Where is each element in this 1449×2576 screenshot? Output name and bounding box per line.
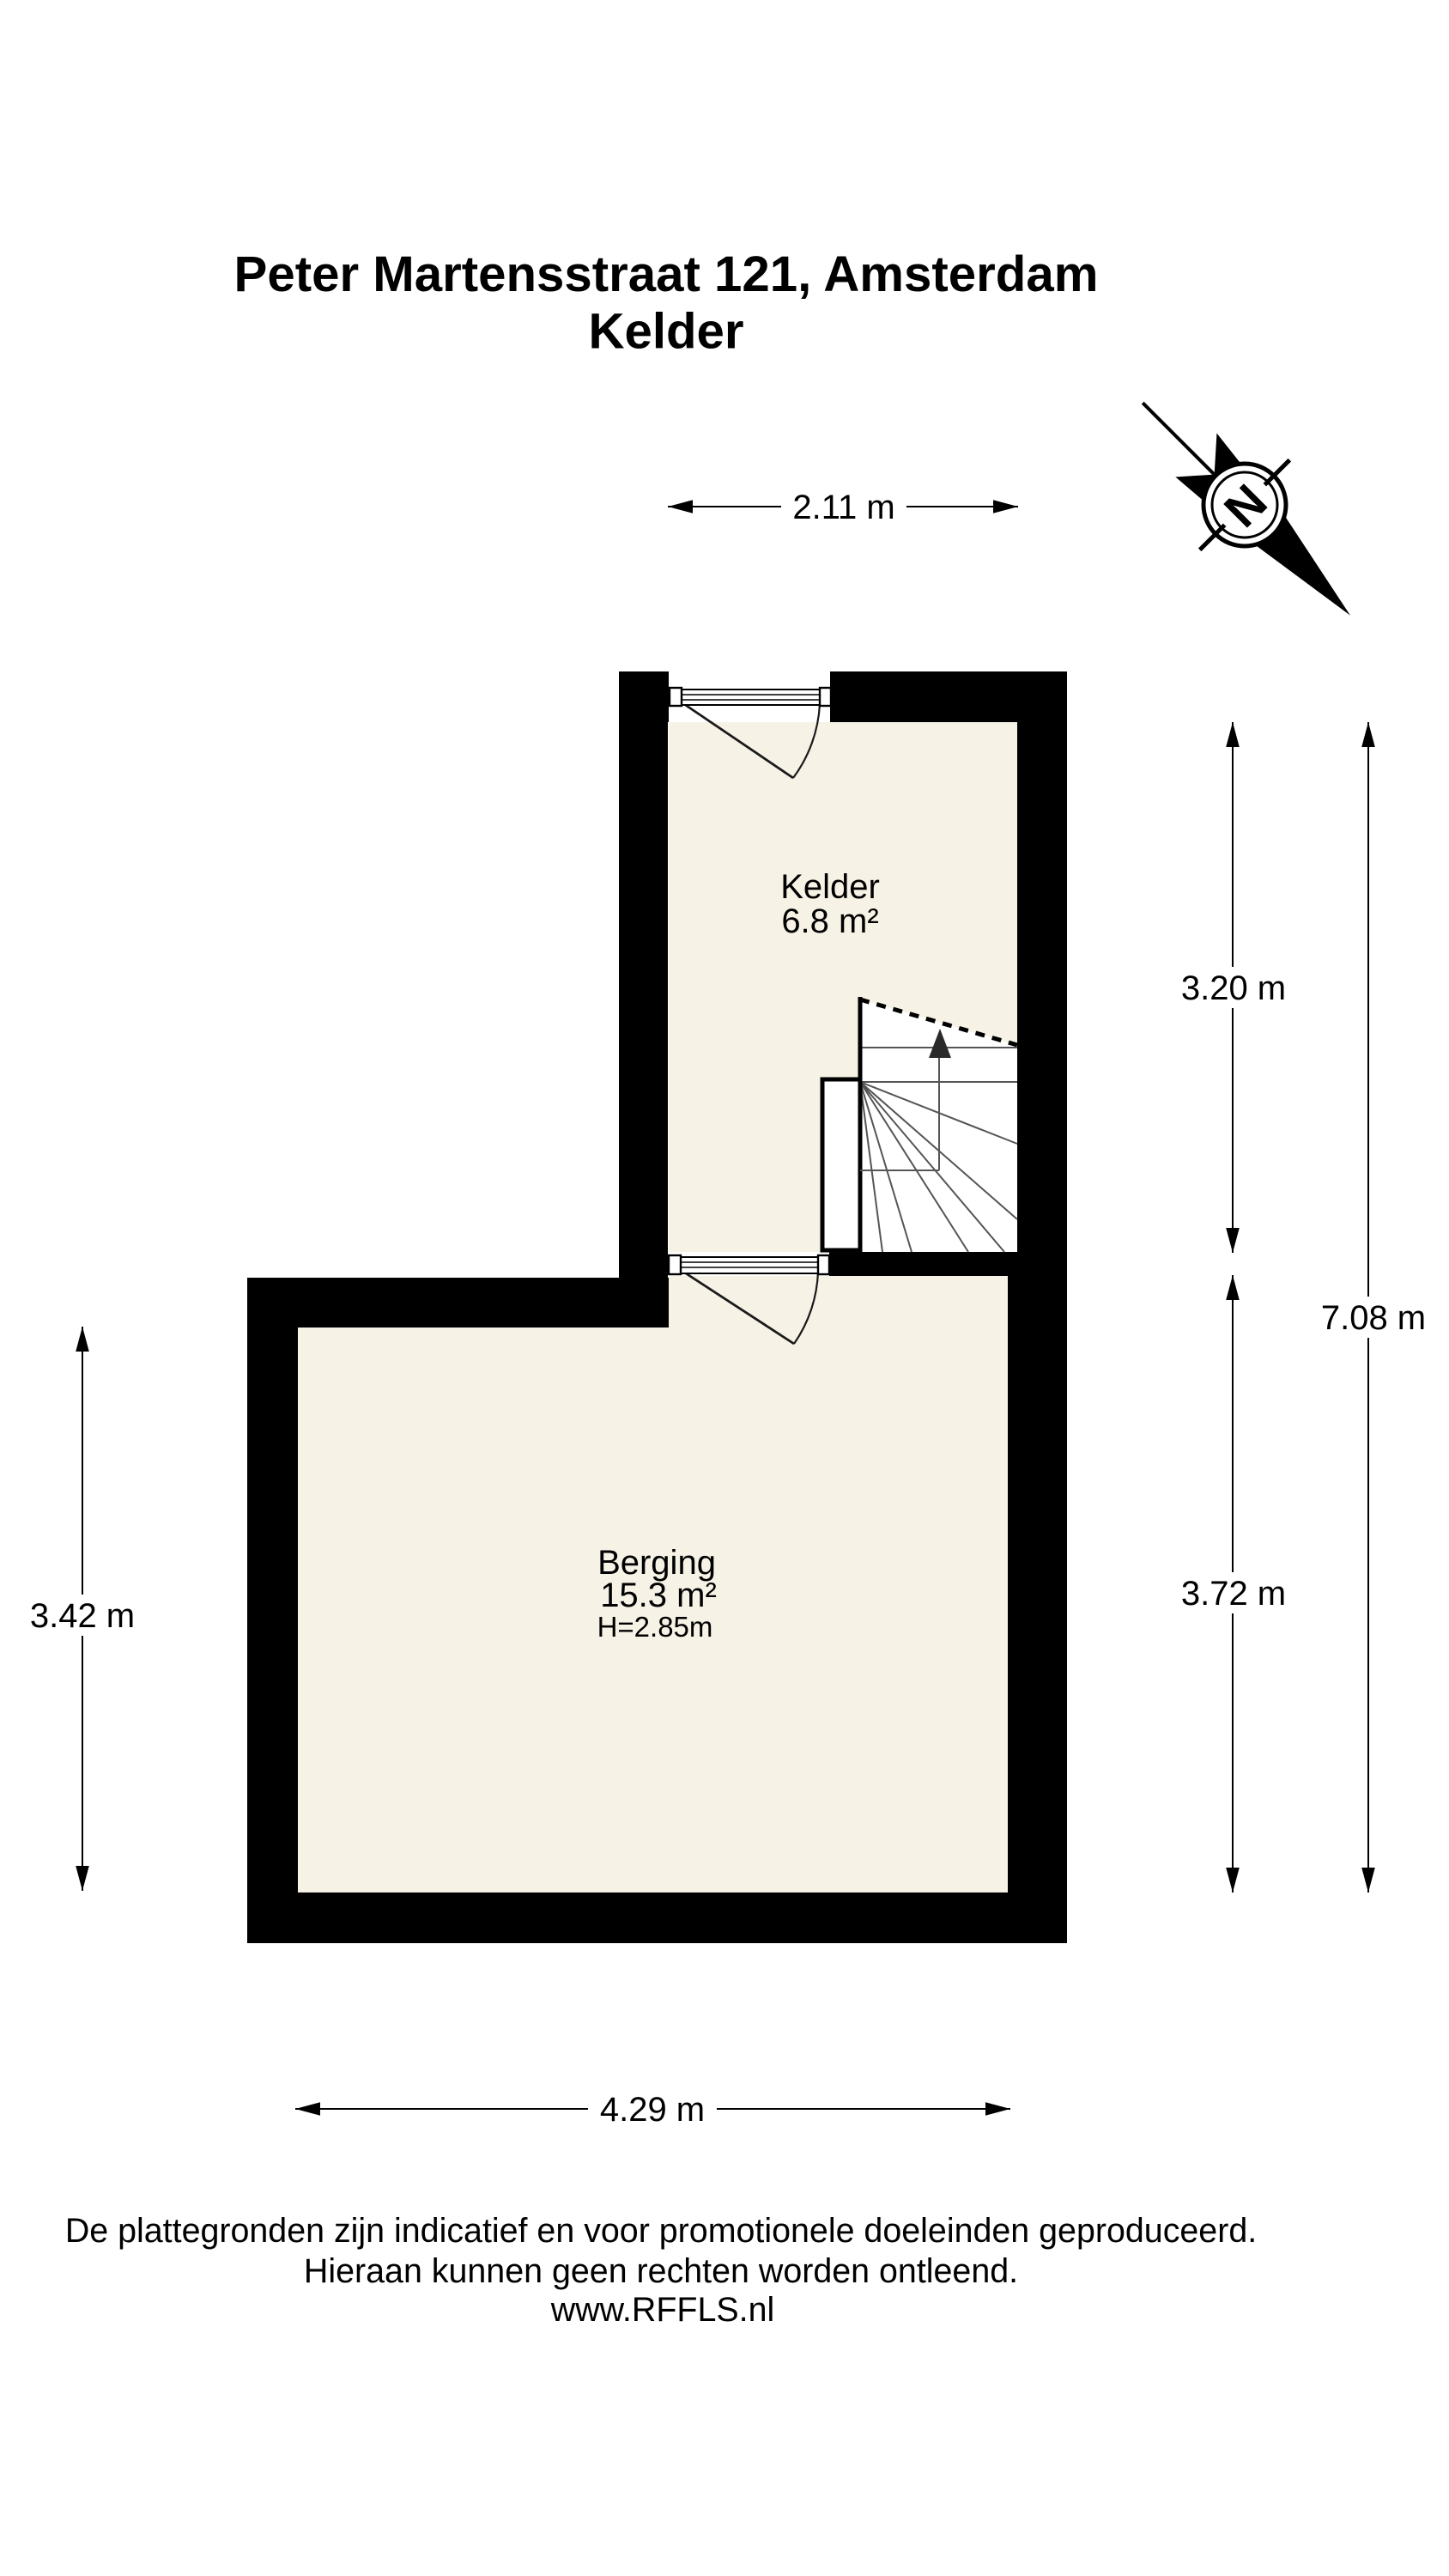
svg-text:3.42 m: 3.42 m [30, 1597, 135, 1635]
svg-text:15.3 m²: 15.3 m² [600, 1577, 717, 1614]
svg-text:6.8 m²: 6.8 m² [781, 902, 878, 940]
svg-text:Kelder: Kelder [780, 868, 880, 906]
svg-text:www.RFFLS.nl: www.RFFLS.nl [550, 2291, 774, 2329]
svg-text:H=2.85m: H=2.85m [597, 1611, 713, 1643]
svg-text:7.08 m: 7.08 m [1321, 1299, 1426, 1337]
svg-text:4.29 m: 4.29 m [600, 2091, 705, 2129]
svg-text:Peter Martensstraat 121, Amste: Peter Martensstraat 121, Amsterdam [234, 246, 1099, 302]
svg-text:Kelder: Kelder [588, 304, 743, 360]
svg-text:3.72 m: 3.72 m [1181, 1575, 1286, 1613]
svg-text:2.11 m: 2.11 m [792, 489, 894, 526]
svg-text:De plattegronden zijn indicati: De plattegronden zijn indicatief en voor… [65, 2212, 1257, 2250]
svg-text:Hieraan kunnen geen rechten wo: Hieraan kunnen geen rechten worden ontle… [304, 2252, 1018, 2290]
svg-text:3.20 m: 3.20 m [1181, 969, 1286, 1007]
